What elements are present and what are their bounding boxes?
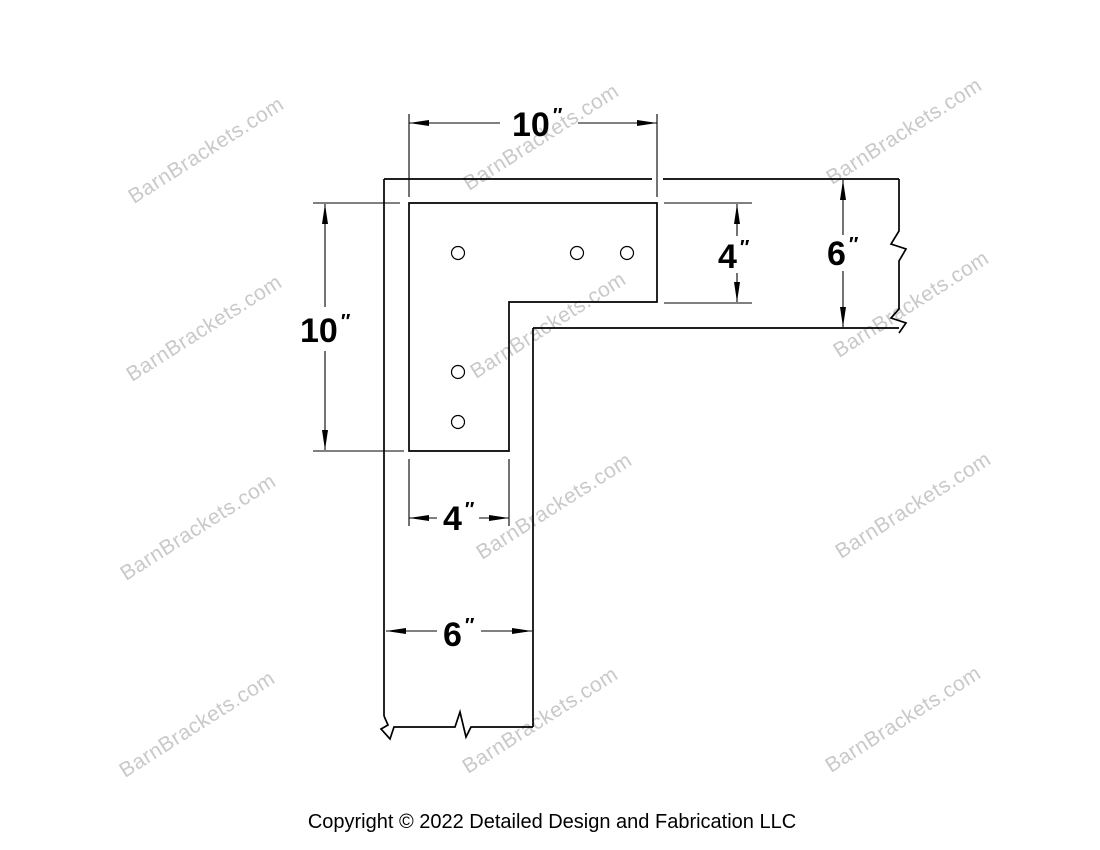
beam-inner-edges <box>533 328 899 727</box>
watermark-text: BarnBrackets.com <box>821 661 985 777</box>
bolt-hole <box>621 247 634 260</box>
watermark-text: BarnBrackets.com <box>124 92 288 208</box>
arrowhead-top <box>322 204 328 224</box>
dimension-right-beam-depth: 6″ <box>827 180 859 327</box>
watermark-text: BarnBrackets.com <box>116 469 280 585</box>
arrowhead-right <box>489 515 509 521</box>
bolt-hole <box>452 416 465 429</box>
copyright-text: Copyright © 2022 Detailed Design and Fab… <box>308 811 796 833</box>
watermark-text: BarnBrackets.com <box>122 270 286 386</box>
arrowhead-top <box>734 204 740 224</box>
watermark-text: BarnBrackets.com <box>829 246 993 362</box>
arrowhead-bottom <box>840 307 846 327</box>
dimension-bottom-beam-depth: 6″ <box>386 615 532 654</box>
drawing-canvas: BarnBrackets.com BarnBrackets.com BarnBr… <box>0 0 1100 850</box>
watermark-text: BarnBrackets.com <box>466 267 630 383</box>
dimension-label-bottom-beam-depth: 6″ <box>443 615 475 654</box>
dimension-label-right-beam-depth: 6″ <box>827 234 859 273</box>
arrowhead-left <box>386 628 406 634</box>
arrowhead-bottom <box>322 430 328 450</box>
bolt-hole <box>452 366 465 379</box>
arrowhead-bottom <box>734 282 740 302</box>
dimension-left-height: 10″ <box>300 203 404 451</box>
dimension-right-leg-width: 4″ <box>664 203 752 303</box>
arrowhead-right <box>637 120 657 126</box>
bolt-hole <box>571 247 584 260</box>
dimension-label-right-leg-width: 4″ <box>718 237 750 276</box>
bracket-technical-drawing: BarnBrackets.com BarnBrackets.com BarnBr… <box>0 0 1100 850</box>
drawing-layer: 10″ 10″ 4″ <box>300 105 906 739</box>
dimension-label-bottom-leg-width: 4″ <box>443 499 475 538</box>
dimension-label-left-height: 10″ <box>300 311 351 350</box>
bolt-hole <box>452 247 465 260</box>
watermark-text: BarnBrackets.com <box>472 448 636 564</box>
watermark-text: BarnBrackets.com <box>458 662 622 778</box>
arrowhead-right <box>512 628 532 634</box>
watermark-text: BarnBrackets.com <box>115 666 279 782</box>
arrowhead-left <box>409 120 429 126</box>
watermark-text: BarnBrackets.com <box>831 447 995 563</box>
arrowhead-left <box>409 515 429 521</box>
watermark-text: BarnBrackets.com <box>822 73 986 189</box>
dimension-bottom-leg-width: 4″ <box>409 459 509 538</box>
